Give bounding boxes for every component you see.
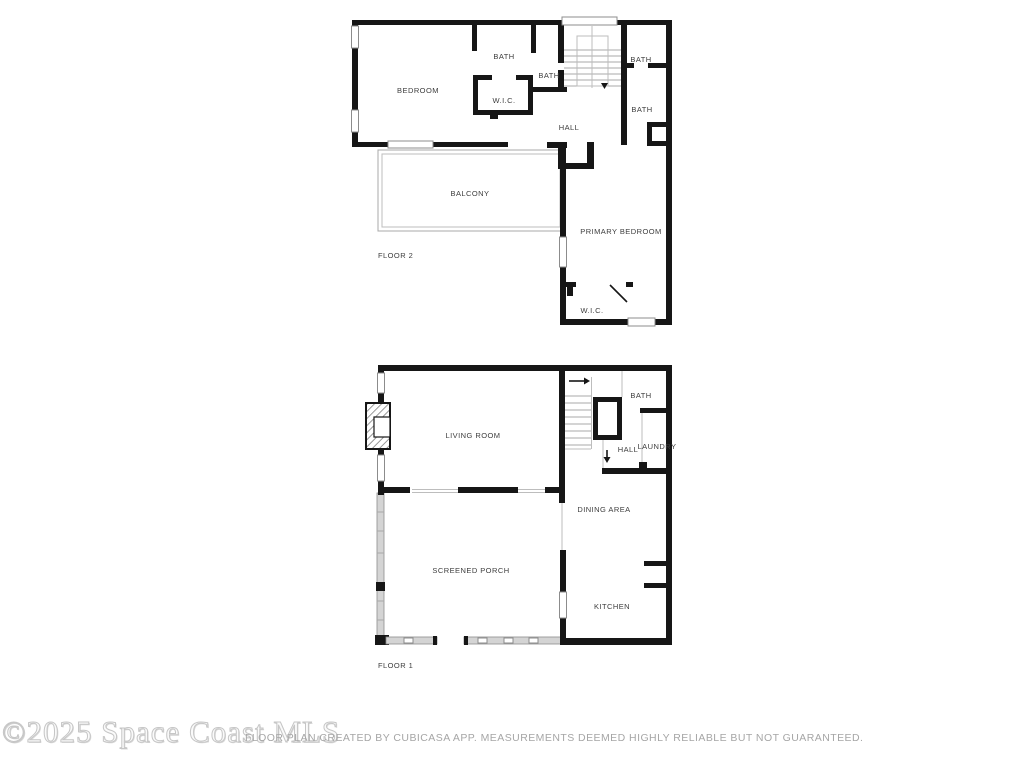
fireplace-icon [366, 403, 390, 449]
floor2-plan: BEDROOM BATH W.I.C. BATH HALL BATH BATH … [352, 17, 673, 326]
room-label-bath-right-upper: BATH [630, 55, 651, 64]
room-label-bath-mid: BATH [538, 71, 559, 80]
room-label-kitchen: KITCHEN [594, 602, 630, 611]
room-label-screened-porch: SCREENED PORCH [432, 566, 509, 575]
floor2-title: FLOOR 2 [378, 251, 413, 260]
room-label-balcony: BALCONY [451, 189, 490, 198]
room-label-bath-floor1: BATH [630, 391, 651, 400]
room-label-dining-area: DINING AREA [577, 505, 630, 514]
stair-up-arrow-icon [584, 378, 590, 385]
room-label-living-room: LIVING ROOM [446, 431, 501, 440]
room-label-wic-bottom: W.I.C. [580, 306, 603, 315]
stairs-icon-floor1 [565, 377, 592, 449]
room-label-wic-top: W.I.C. [492, 96, 515, 105]
room-label-bedroom: BEDROOM [397, 86, 439, 95]
room-label-hall-floor2: HALL [559, 123, 580, 132]
stairs-icon-floor2 [564, 26, 621, 89]
floor1-plan: LIVING ROOM BATH HALL LAUNDRY DINING ARE… [366, 365, 676, 670]
floor1-title: FLOOR 1 [378, 661, 413, 670]
floor-plan-canvas: BEDROOM BATH W.I.C. BATH HALL BATH BATH … [0, 0, 1024, 768]
wic-door-swing-icon [610, 285, 627, 302]
room-label-bath-right-lower: BATH [631, 105, 652, 114]
cubicasa-disclaimer: FLOOR PLAN CREATED BY CUBICASA APP. MEAS… [245, 732, 863, 744]
floor2-walls [352, 20, 672, 325]
room-label-laundry: LAUNDRY [638, 442, 677, 451]
floor1-windows [378, 373, 567, 618]
floor-plan-page: BEDROOM BATH W.I.C. BATH HALL BATH BATH … [0, 0, 1024, 768]
room-label-primary-bedroom: PRIMARY BEDROOM [580, 227, 662, 236]
room-label-hall-floor1: HALL [618, 445, 639, 454]
hall-door-arrow-icon [603, 440, 611, 468]
floor2-windows [352, 17, 656, 326]
room-label-bath-top: BATH [493, 52, 514, 61]
